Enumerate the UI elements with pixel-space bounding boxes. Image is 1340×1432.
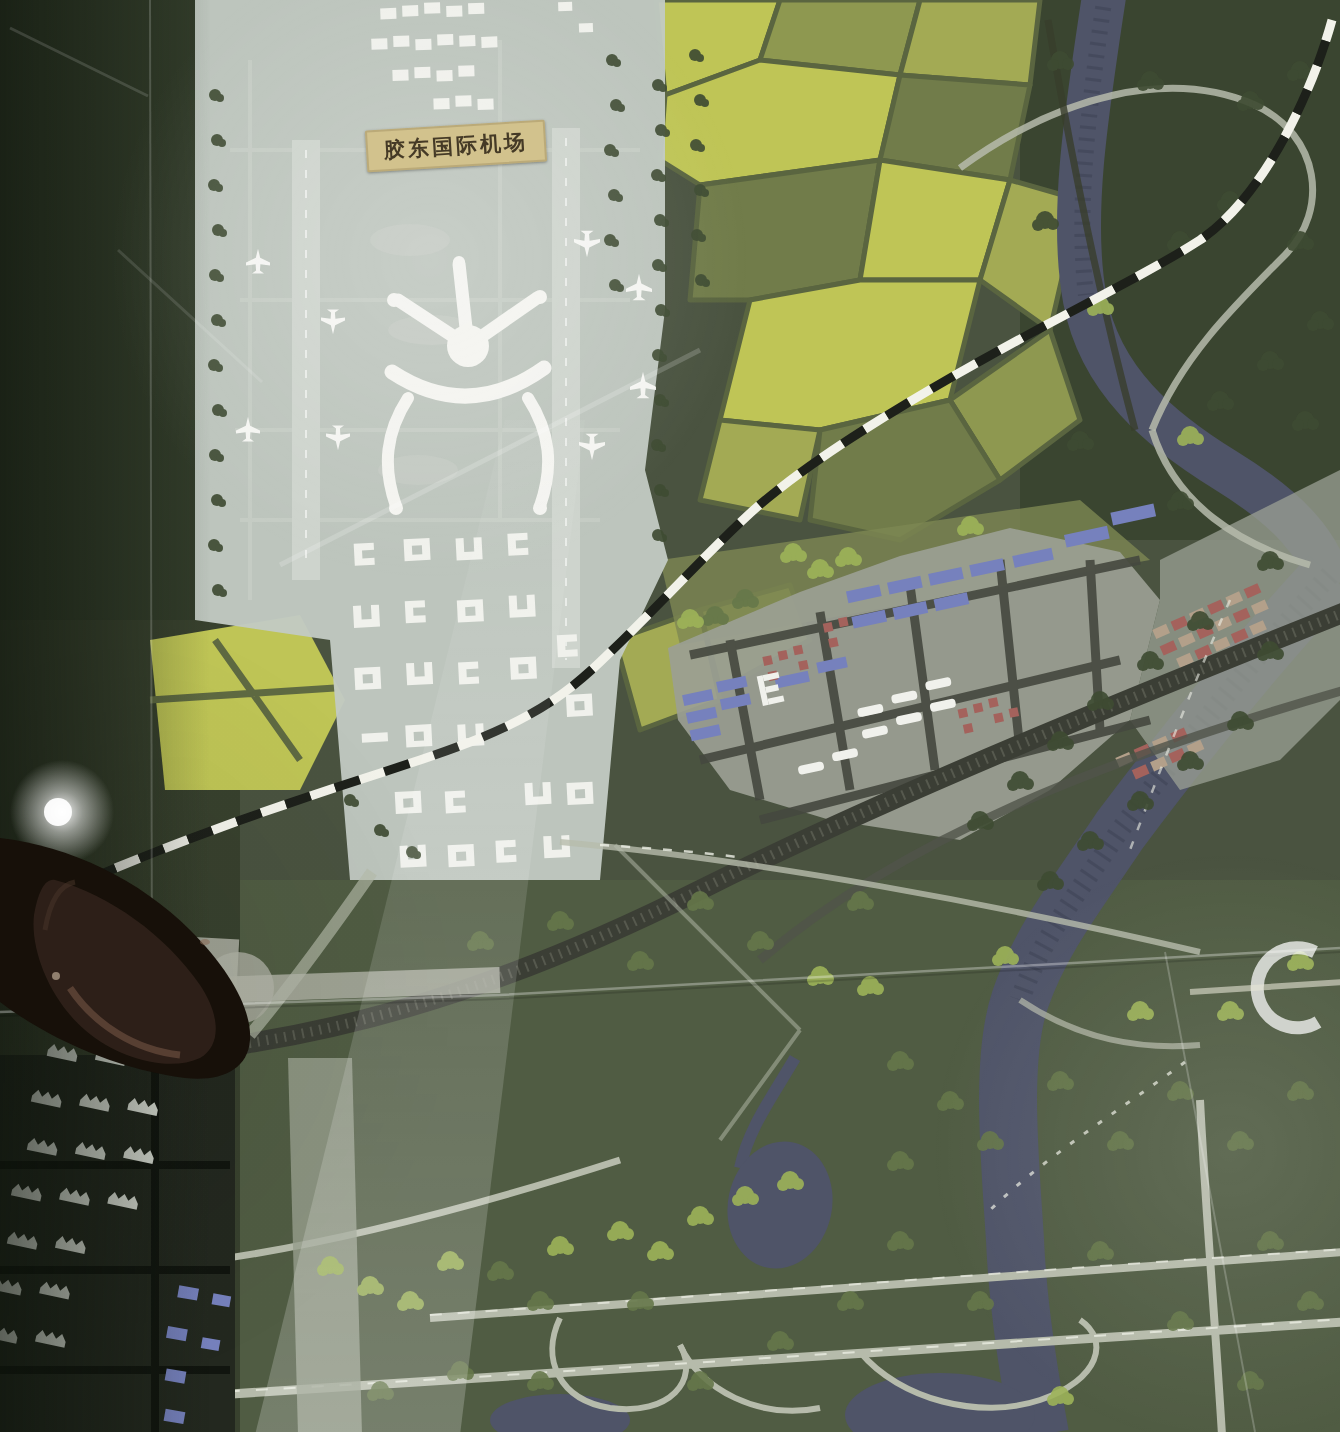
scale-model-scene [0, 0, 1340, 1432]
model-photo: 胶东国际机场 [0, 0, 1340, 1432]
